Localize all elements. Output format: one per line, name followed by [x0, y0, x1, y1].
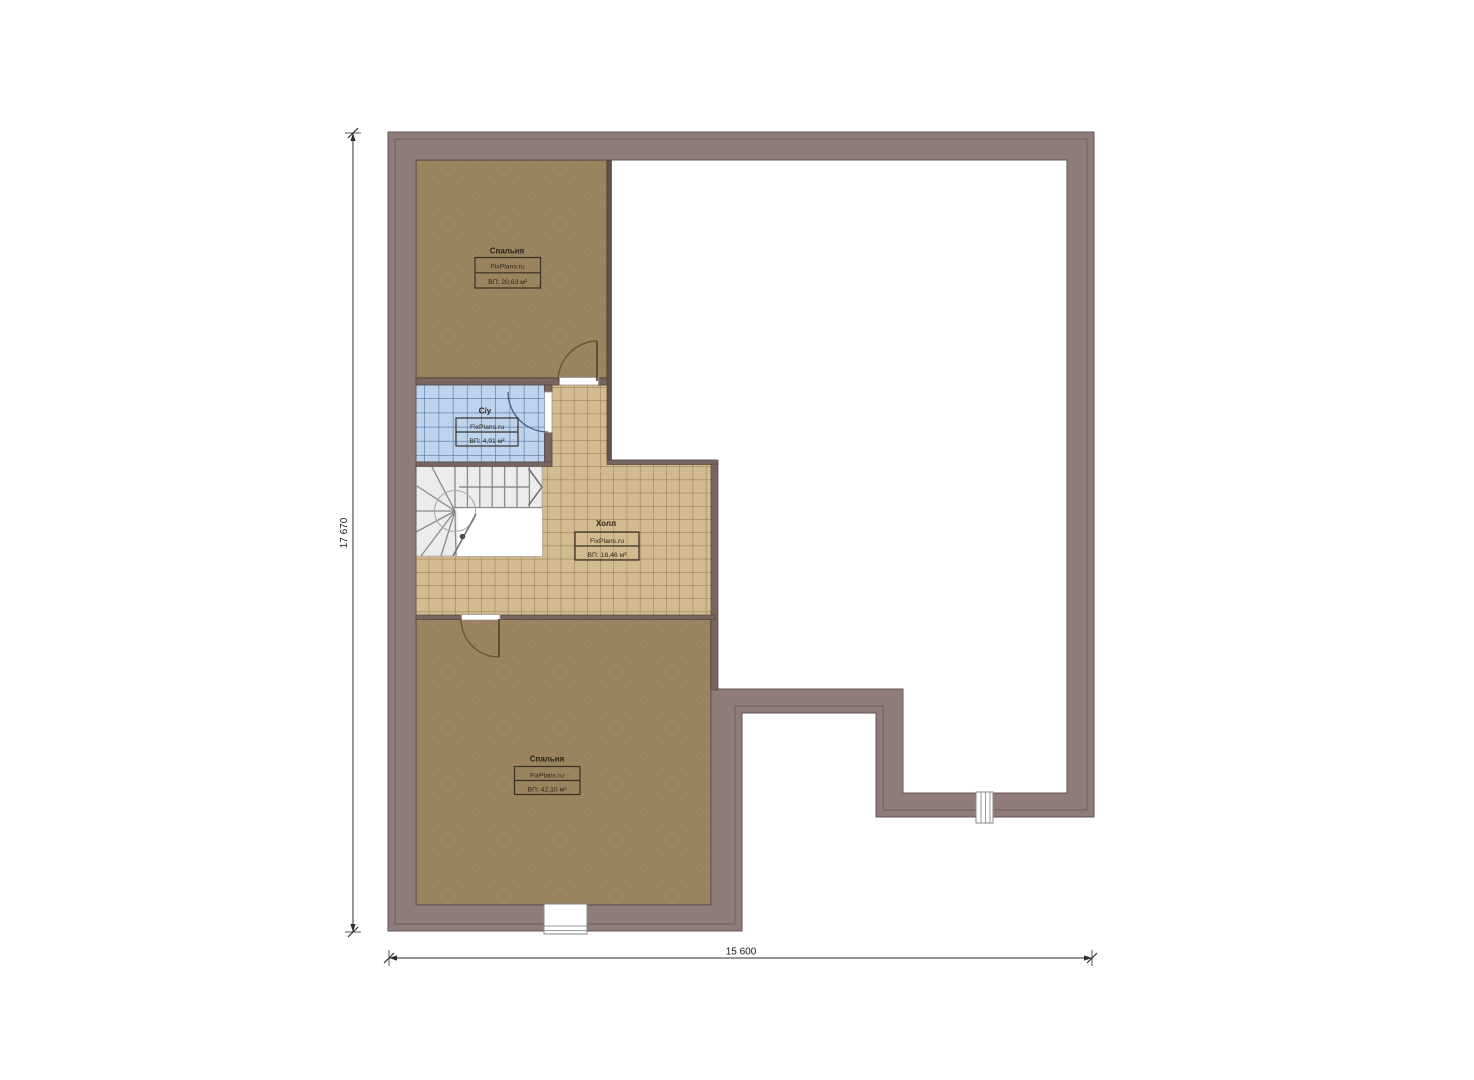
svg-text:Спальня: Спальня	[490, 247, 525, 256]
svg-text:FixPlans.ru: FixPlans.ru	[470, 424, 504, 431]
svg-text:Холл: Холл	[596, 519, 616, 528]
svg-text:ВП: 20,63 м²: ВП: 20,63 м²	[488, 279, 528, 286]
svg-text:ВП: 4,91 м²: ВП: 4,91 м²	[469, 438, 505, 445]
svg-text:17 670: 17 670	[339, 517, 350, 548]
svg-text:ВП: 42,10 м²: ВП: 42,10 м²	[527, 787, 567, 794]
svg-text:15 600: 15 600	[726, 947, 757, 958]
svg-text:Спальня: Спальня	[530, 755, 565, 764]
svg-text:ВП: 18,46 м²: ВП: 18,46 м²	[587, 552, 627, 559]
svg-text:FixPlans.ru: FixPlans.ru	[530, 772, 564, 779]
svg-text:FixPlans.ru: FixPlans.ru	[590, 538, 624, 545]
svg-text:FixPlans.ru: FixPlans.ru	[491, 264, 525, 271]
svg-text:С/у: С/у	[479, 407, 492, 416]
